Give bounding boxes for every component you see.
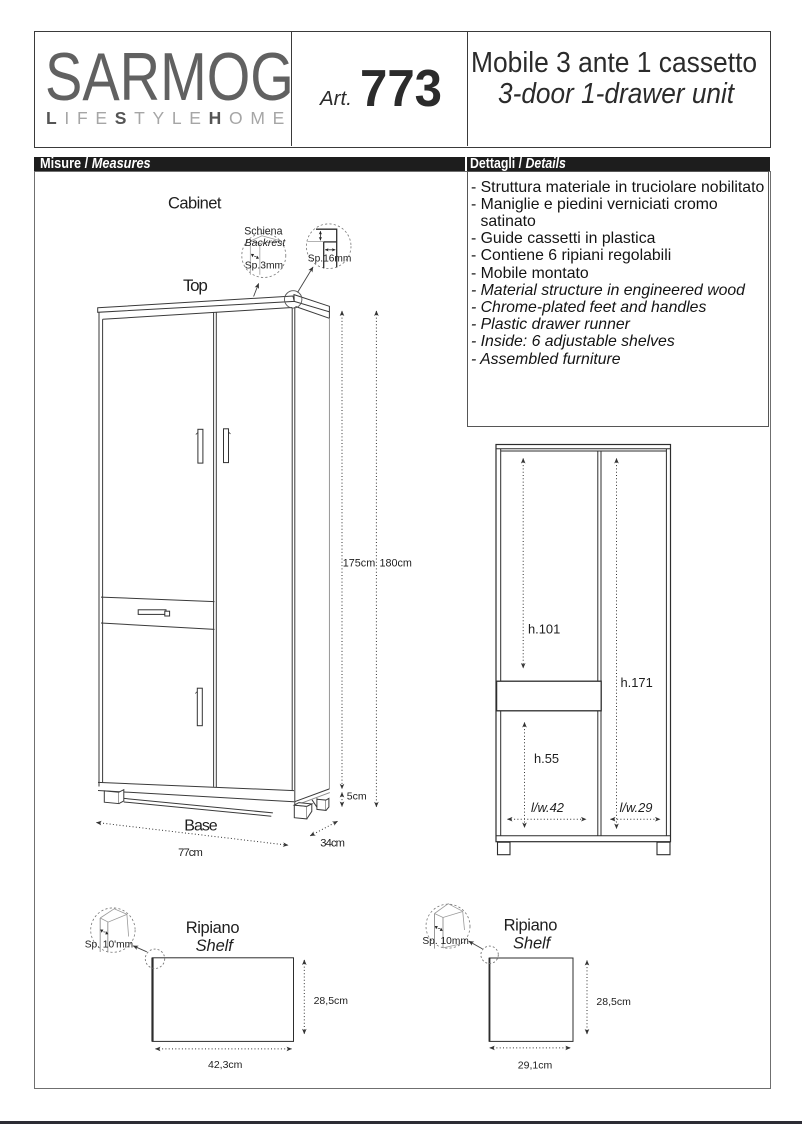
svg-text:Top: Top	[183, 276, 208, 295]
svg-text:42,3cm: 42,3cm	[208, 1059, 243, 1071]
svg-text:h.55: h.55	[534, 751, 559, 766]
svg-text:Schiena: Schiena	[244, 226, 282, 238]
svg-text:Sp. 10mm: Sp. 10mm	[422, 936, 468, 947]
svg-text:29,1cm: 29,1cm	[518, 1059, 553, 1071]
svg-text:34cm: 34cm	[320, 837, 345, 849]
svg-text:Sp. 10'mm: Sp. 10'mm	[85, 939, 133, 950]
svg-text:Backrest: Backrest	[245, 238, 287, 249]
svg-text:h.171: h.171	[621, 675, 653, 690]
svg-text:Sp.3mm: Sp.3mm	[245, 261, 283, 272]
svg-text:28,5cm: 28,5cm	[596, 996, 631, 1008]
svg-text:Cabinet: Cabinet	[168, 194, 222, 212]
svg-text:Sp.16mm: Sp.16mm	[308, 254, 352, 265]
svg-text:180cm: 180cm	[380, 558, 412, 570]
svg-text:28,5cm: 28,5cm	[314, 995, 349, 1007]
svg-text:Shelf: Shelf	[196, 937, 236, 955]
svg-text:77cm: 77cm	[178, 847, 203, 859]
svg-text:Ripiano: Ripiano	[186, 919, 240, 937]
svg-text:l/w.29: l/w.29	[620, 800, 653, 815]
svg-text:Ripiano: Ripiano	[504, 917, 558, 935]
svg-text:Base: Base	[184, 818, 217, 835]
svg-text:l/w.42: l/w.42	[531, 800, 564, 815]
svg-text:Shelf: Shelf	[513, 934, 553, 952]
svg-text:h.101: h.101	[528, 622, 560, 637]
svg-text:5cm: 5cm	[347, 790, 367, 802]
svg-text:175cm: 175cm	[343, 558, 375, 570]
